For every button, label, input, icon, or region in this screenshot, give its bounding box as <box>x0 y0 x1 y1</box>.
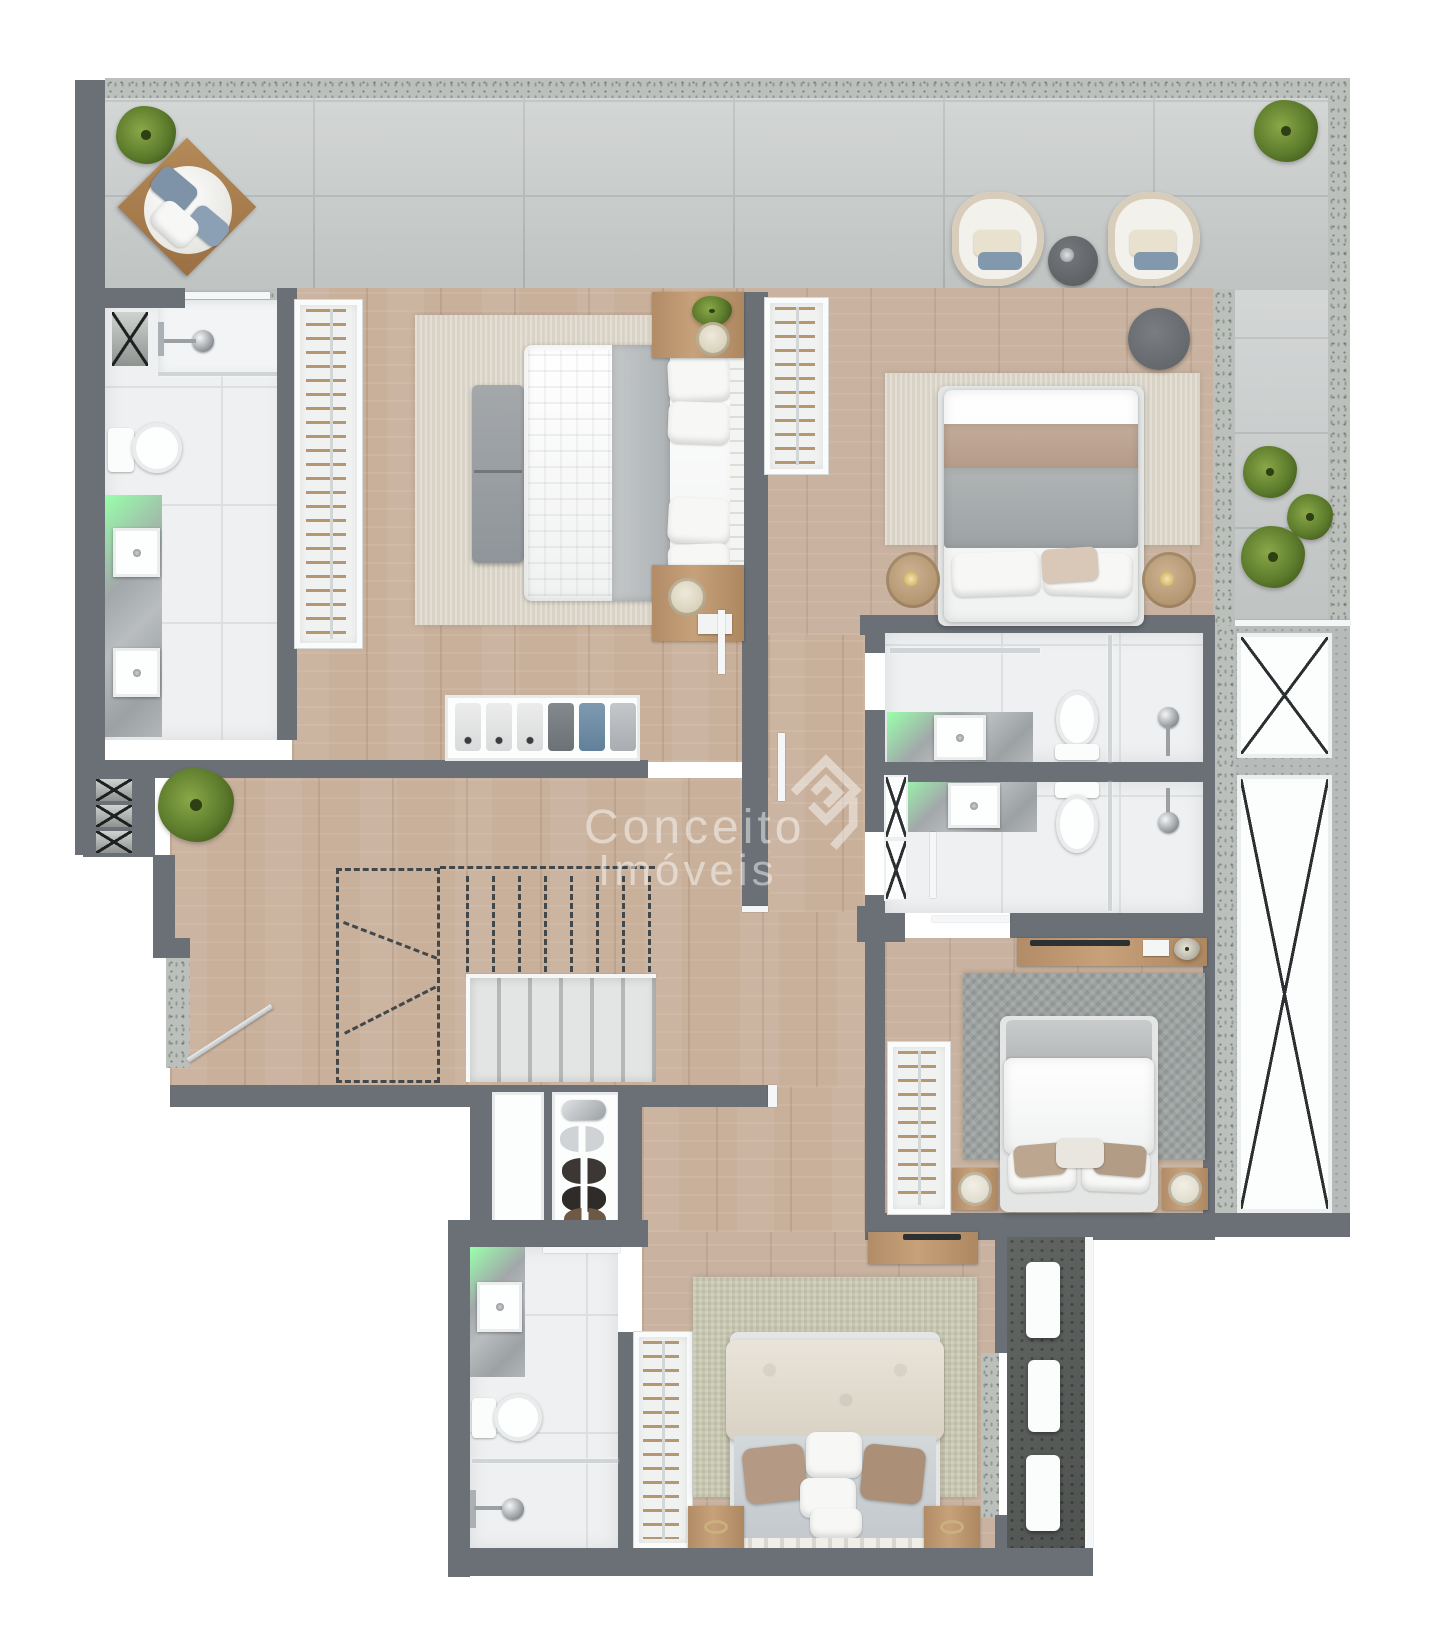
bedroom2-blanket-beige <box>944 424 1138 472</box>
closet-rail <box>662 1341 665 1539</box>
shower-head-icon <box>1158 812 1179 833</box>
sink-icon <box>934 715 986 760</box>
pillow-accent <box>741 1443 809 1505</box>
shoes-pair <box>560 1126 604 1152</box>
shower-glass <box>1108 635 1112 762</box>
closet-rail <box>330 309 333 639</box>
decor-plate <box>1168 1172 1202 1206</box>
bedroom3-comforter <box>726 1340 944 1440</box>
stair-tick <box>544 876 547 972</box>
bench-panel <box>1026 1455 1060 1531</box>
sink-icon <box>477 1282 522 1332</box>
egg-chair-pillow-blue <box>978 252 1022 270</box>
gold-pull-icon <box>940 1520 964 1534</box>
master-bed-bench <box>472 385 524 563</box>
closet-hangers-icon <box>898 1051 936 1205</box>
suite2-entry-door <box>932 916 1010 922</box>
floor-plan: Conceito Imóveis <box>0 0 1440 1649</box>
pillow <box>667 354 731 403</box>
shower-controls <box>158 322 164 356</box>
master-shower-floor <box>158 300 285 375</box>
toilet-icon <box>1056 691 1098 747</box>
toilet-icon <box>108 428 134 472</box>
open-door <box>930 832 936 898</box>
terrace-right-border <box>1328 78 1350 630</box>
wall-suite2-top <box>1010 911 1215 938</box>
pillow-accent <box>1041 546 1099 584</box>
toilet-icon <box>1056 795 1098 853</box>
master-bed-quilt <box>528 350 612 596</box>
egg-chair <box>952 192 1044 286</box>
wall-rightzone-bottom <box>1215 1213 1350 1237</box>
bench-panel <box>1026 1262 1060 1338</box>
folded-clothes <box>610 703 636 751</box>
wall-master-bath-right <box>277 288 297 740</box>
candle-icon <box>904 572 918 586</box>
sill-strip-right <box>1213 289 1235 635</box>
candle-icon <box>1160 572 1174 586</box>
suite2-closet <box>888 1042 950 1214</box>
pillow <box>951 550 1040 597</box>
stair-void-dashed <box>336 868 440 1083</box>
closet-hangers-icon <box>775 307 815 465</box>
wall-sill-left <box>83 288 185 308</box>
closet-hangers-icon <box>643 1341 679 1539</box>
toilet-bowl <box>494 1394 542 1441</box>
wall-baths-divider <box>865 760 1215 782</box>
pillow <box>806 1432 862 1478</box>
bench-panel <box>1028 1360 1060 1432</box>
pillow <box>667 496 731 545</box>
shoes-pair <box>562 1158 606 1184</box>
sink-icon <box>113 648 160 697</box>
folded-clothes <box>548 703 574 751</box>
terrace-top-border <box>105 78 1350 100</box>
wall-left <box>75 80 105 855</box>
bedroom2-closet <box>765 298 828 474</box>
entry-threshold <box>166 958 190 1068</box>
stair-tick <box>518 876 521 972</box>
table-lamp-icon <box>1060 248 1074 262</box>
wall-entry-step <box>153 855 175 945</box>
sink-icon <box>948 783 1000 828</box>
shower-head-icon <box>1158 707 1179 728</box>
shower-glass <box>472 1459 618 1463</box>
master-bed-blanket <box>612 345 670 601</box>
wall-bottom <box>448 1548 1093 1576</box>
door-jamb <box>742 906 768 912</box>
shaft-left-border <box>1215 626 1235 1213</box>
wall-bath4-top <box>448 1220 648 1247</box>
tv-icon <box>903 1234 961 1240</box>
decor-tray <box>696 322 730 356</box>
folded-clothes <box>486 703 512 751</box>
pillow-accent <box>859 1443 927 1505</box>
egg-chair <box>1108 192 1200 286</box>
toilet-icon <box>472 1398 496 1438</box>
magazine <box>698 614 732 634</box>
shaft-x-panel <box>1237 775 1332 1213</box>
duct-x-icon <box>112 312 148 366</box>
duct-x-icon <box>96 779 132 801</box>
master-closet <box>295 300 362 648</box>
shower-glass <box>1108 782 1112 911</box>
pillow <box>667 401 730 445</box>
wall-shoe-left <box>470 1085 492 1242</box>
wall-entry-stub <box>153 938 190 958</box>
wall-bath-left-c <box>865 895 885 1217</box>
round-table <box>1128 308 1190 370</box>
duct-x-icon <box>96 831 132 853</box>
bedroom3-closet <box>634 1332 692 1548</box>
master-bed-bench-split <box>474 470 522 473</box>
shower-head-icon <box>502 1498 524 1520</box>
shaft-x-panel <box>1237 633 1332 758</box>
bath-shelf <box>890 648 1040 653</box>
closet-rail <box>918 1051 921 1205</box>
closet-hangers-icon <box>306 309 346 639</box>
tv-icon <box>1030 940 1130 946</box>
sliding-door-threshold <box>981 1353 999 1517</box>
pocket-door <box>718 610 725 674</box>
folded-clothes <box>579 703 605 751</box>
bedroom2-duvet-gray <box>944 468 1138 548</box>
wall-bath-left-a <box>865 633 885 653</box>
desk-card <box>1143 940 1169 956</box>
side-table <box>1048 236 1098 286</box>
stair-tick <box>466 876 469 972</box>
open-door <box>543 1247 620 1253</box>
closet-rail <box>796 307 799 465</box>
pillow <box>810 1508 862 1538</box>
folded-clothes <box>455 703 481 751</box>
corridor2-floor <box>642 1087 867 1232</box>
shower-stem <box>1166 726 1170 756</box>
toilet-tank <box>1055 744 1099 760</box>
lounge-chair <box>122 146 252 276</box>
door-jamb <box>768 1085 777 1107</box>
toilet-bowl <box>132 423 182 473</box>
shower-arm <box>160 339 196 343</box>
staircase <box>466 978 656 1082</box>
folded-clothes <box>517 703 543 751</box>
shower-glass <box>158 372 285 376</box>
understair-storage <box>492 1092 544 1232</box>
watermark-line2: Imóveis <box>598 846 778 896</box>
wall-bath4-left <box>448 1247 470 1577</box>
window-track <box>185 292 270 299</box>
stair-tick <box>492 876 495 972</box>
pillow-small <box>1056 1138 1104 1168</box>
service-terrace-edge <box>1085 1237 1093 1548</box>
clutch-silver <box>562 1100 606 1120</box>
decor-plate <box>958 1172 992 1206</box>
wall-shoe-mid <box>544 1090 552 1235</box>
decor-tray <box>668 578 706 616</box>
watermark: Conceito Imóveis <box>560 748 900 898</box>
sink-icon <box>113 528 160 577</box>
duct-x-icon <box>96 805 132 827</box>
gold-pull-icon <box>704 1520 728 1534</box>
egg-chair-pillow-blue <box>1134 252 1178 270</box>
